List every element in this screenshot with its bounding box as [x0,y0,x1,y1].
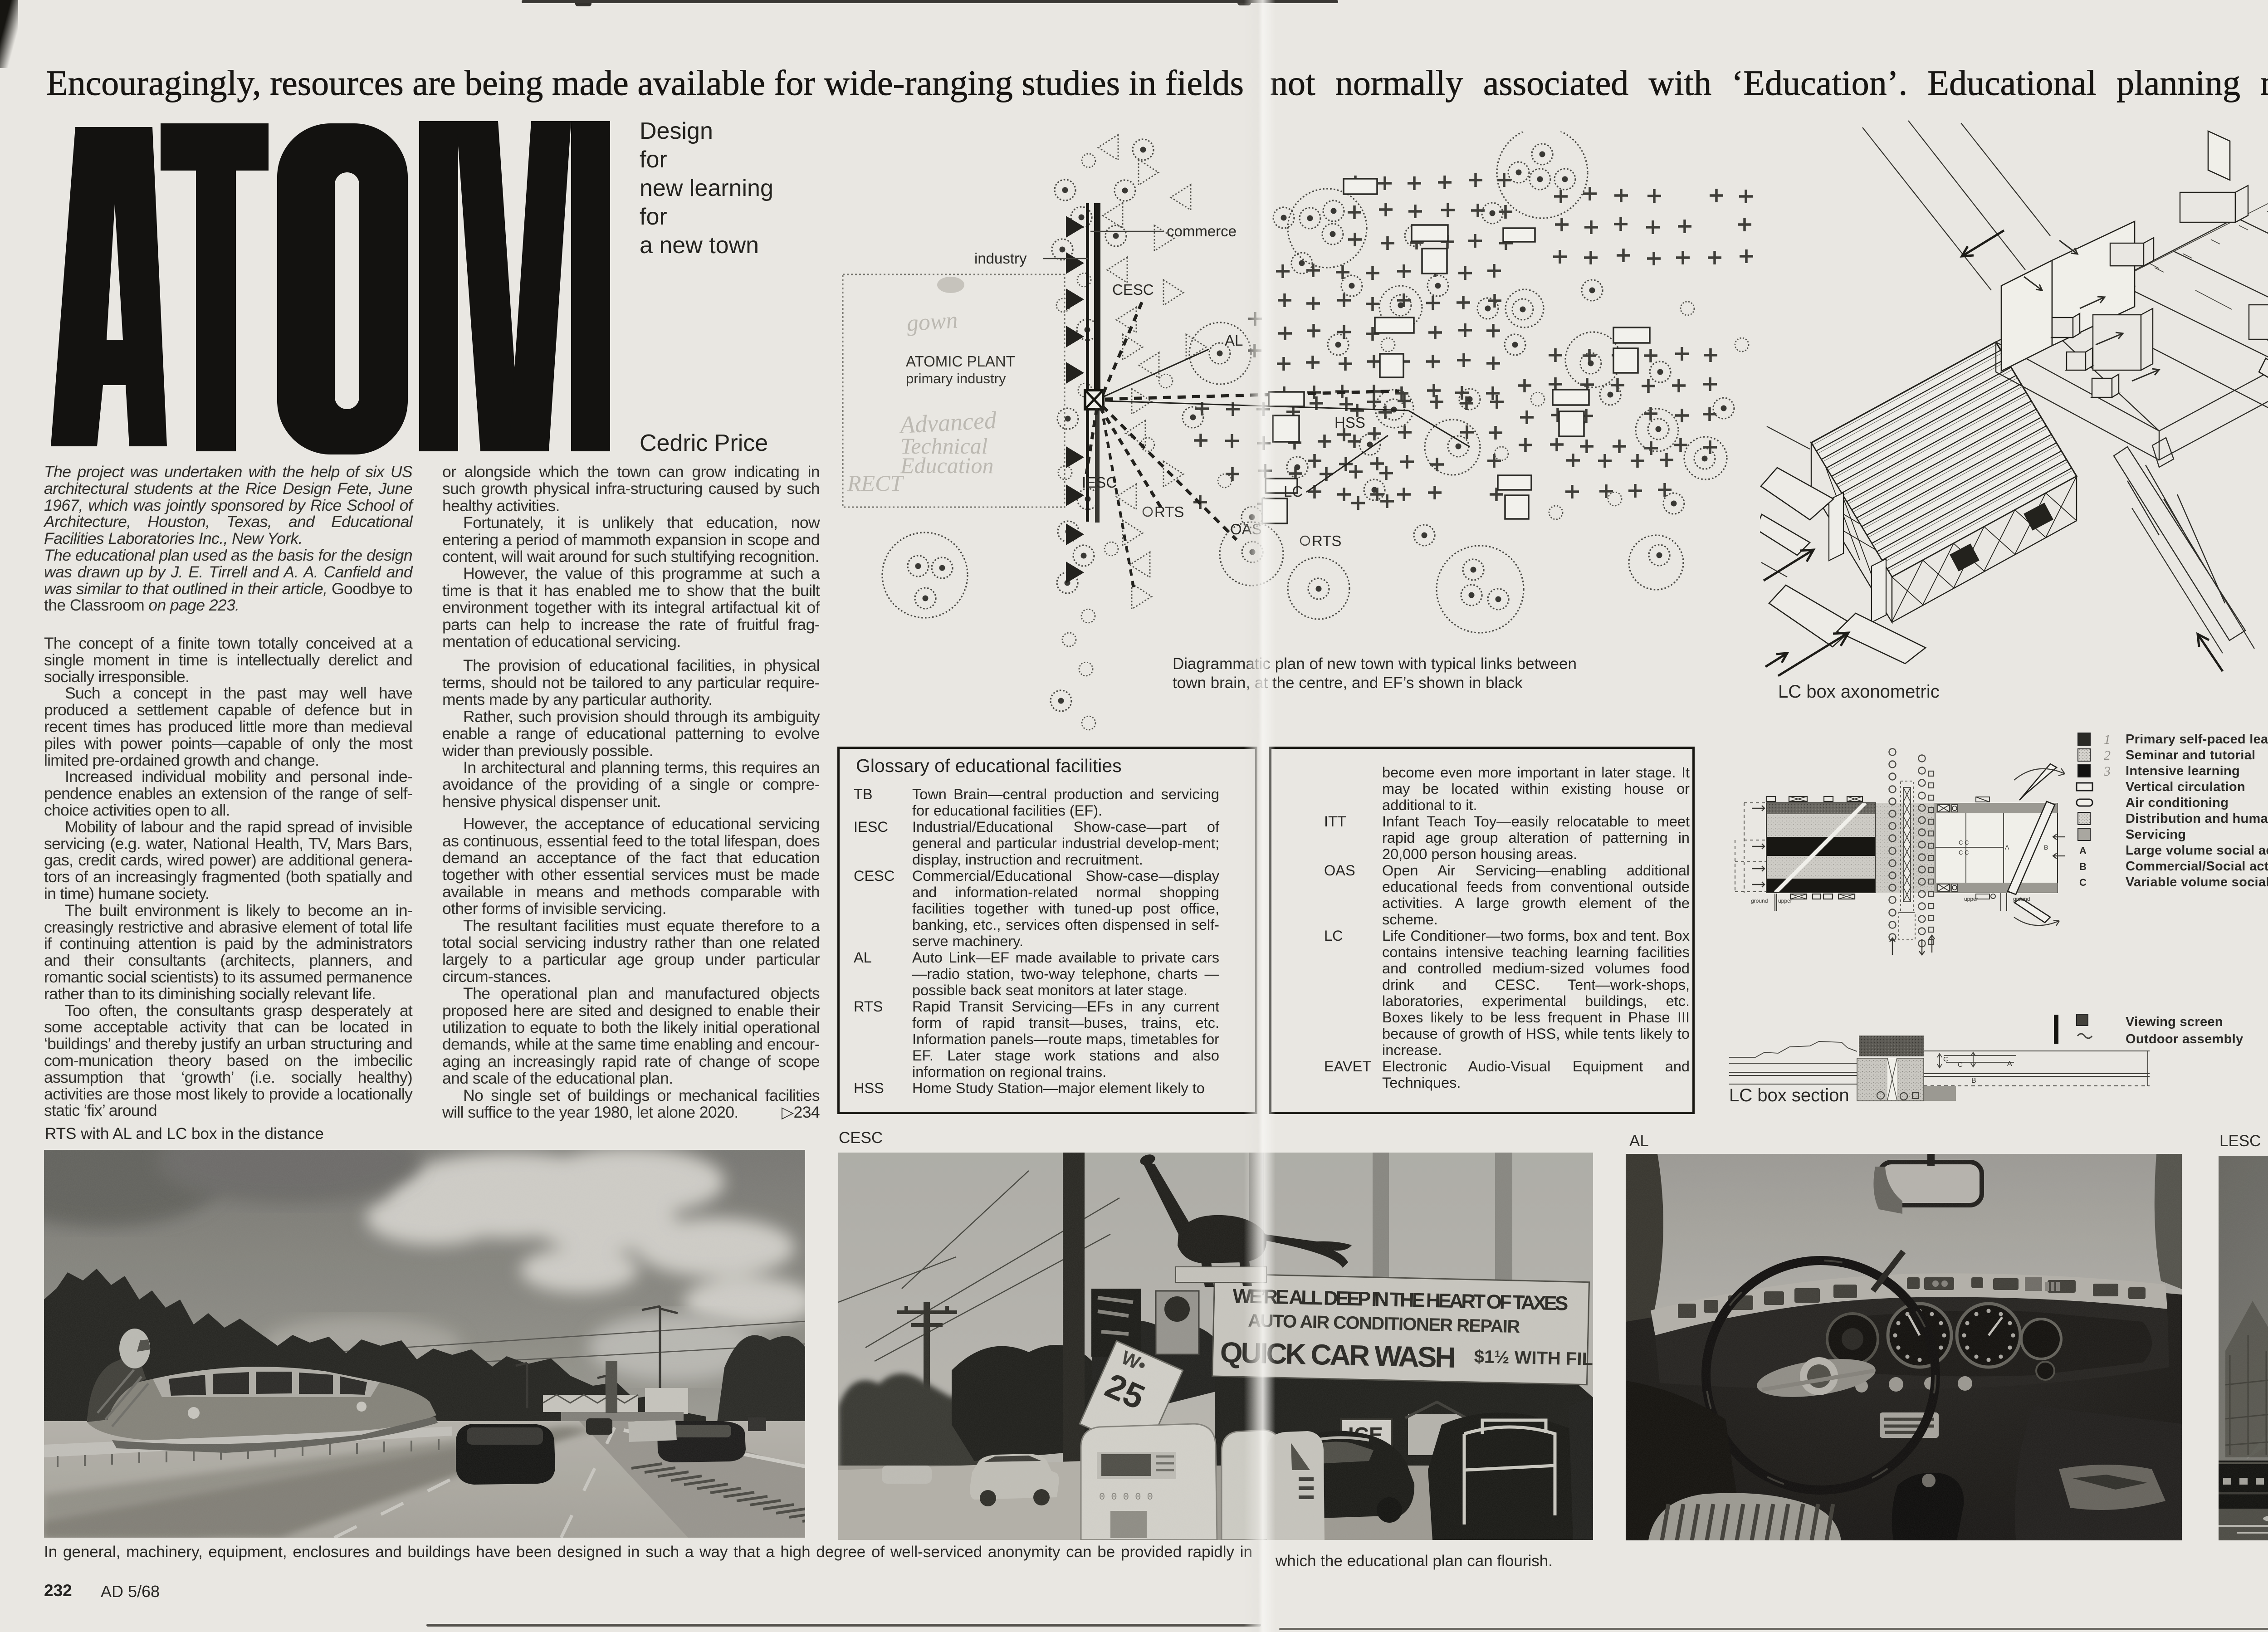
svg-text:HSS: HSS [1334,414,1365,431]
svg-text:primary industry: primary industry [906,371,1006,386]
svg-text:town brain, at the centre, and: town brain, at the centre, and EF’s show… [1173,674,1523,692]
svg-text:LC box axonometric: LC box axonometric [1778,682,1940,702]
svg-text:RECT: RECT [847,470,904,496]
svg-text:ATOMIC PLANT: ATOMIC PLANT [906,353,1015,370]
svg-text:C: C [1958,1061,1963,1069]
svg-text:LC box section: LC box section [1729,1085,1849,1105]
svg-text:Education: Education [900,453,994,478]
svg-text:RTS: RTS [1312,533,1341,549]
svg-text:A: A [2007,1060,2012,1068]
svg-text:LC: LC [1284,483,1303,500]
svg-text:B: B [2079,861,2087,872]
svg-text:IESC: IESC [1082,474,1117,491]
svg-text:ground: ground [1751,898,1768,904]
svg-text:B: B [1971,1077,1976,1085]
svg-text:upper: upper [1964,896,1978,902]
svg-text:industry: industry [974,250,1027,267]
svg-text:C C: C C [1959,839,1969,846]
svg-text:B: B [2044,844,2048,851]
svg-text:C C: C C [1959,849,1969,856]
svg-text:C: C [1943,1055,1948,1063]
svg-text:ground: ground [2013,896,2030,902]
svg-text:commerce: commerce [1167,223,1237,239]
svg-text:upper: upper [1778,898,1792,904]
svg-text:2: 2 [2104,748,2111,763]
svg-text:3: 3 [2103,764,2111,779]
svg-text:gown: gown [906,307,958,337]
svg-text:A: A [2005,844,2009,851]
svg-text:Diagrammatic plan of new town: Diagrammatic plan of new town with typic… [1173,655,1577,673]
svg-text:AL: AL [1225,332,1243,349]
svg-text:RTS: RTS [1154,503,1184,520]
svg-text:C: C [2079,877,2087,888]
svg-text:LC box plan: LC box plan [1729,959,1826,962]
svg-text:CESC: CESC [1112,281,1154,298]
svg-text:1: 1 [2104,732,2111,747]
svg-text:A: A [2079,845,2087,856]
